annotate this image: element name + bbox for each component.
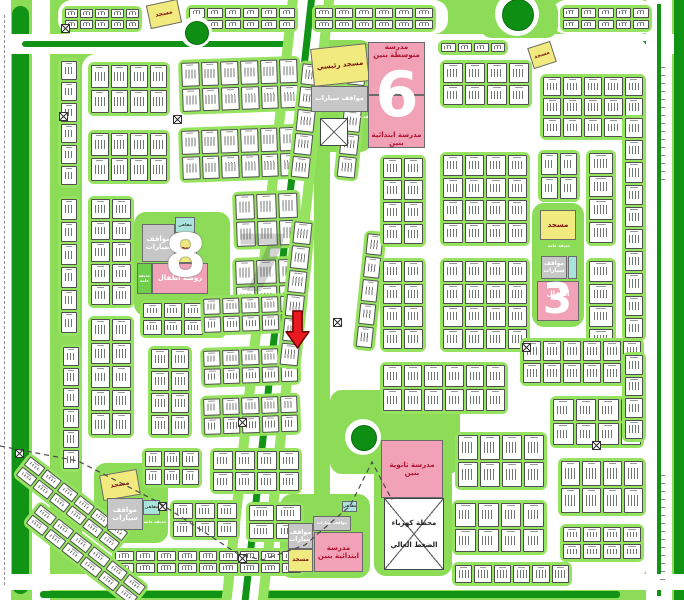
mosque-bottom-left-label: مسجد — [110, 480, 130, 491]
plot — [458, 462, 478, 487]
plot — [633, 8, 649, 18]
plot — [91, 285, 110, 305]
plot — [91, 413, 110, 435]
plot — [207, 8, 223, 18]
plot — [560, 153, 577, 175]
plot — [633, 20, 649, 30]
plot — [561, 461, 580, 486]
plot — [260, 128, 278, 152]
plot — [625, 140, 643, 160]
plot — [261, 314, 279, 331]
plot — [625, 420, 643, 440]
plot — [404, 224, 423, 244]
plot — [581, 20, 597, 30]
plot — [157, 563, 176, 573]
plot — [576, 399, 597, 421]
plot — [178, 551, 197, 561]
plot — [261, 20, 277, 30]
plot — [443, 284, 463, 305]
plot — [486, 223, 506, 244]
plot — [222, 398, 240, 416]
plot — [465, 85, 485, 105]
plot — [279, 472, 299, 491]
plot — [589, 199, 613, 220]
plot — [112, 264, 131, 284]
housing-block-11 — [88, 196, 134, 308]
housing-block-22 — [170, 500, 240, 540]
plot — [91, 65, 109, 88]
plot — [383, 261, 402, 282]
garden-bottom-left-label: حديقة عامة — [140, 516, 170, 528]
plot — [61, 82, 77, 101]
district-number-6: 6 — [368, 64, 425, 126]
plot — [458, 43, 473, 52]
utility-x-symbol-4 — [522, 343, 531, 352]
plot — [261, 153, 279, 177]
housing-block-38 — [538, 150, 580, 202]
plot — [63, 368, 79, 387]
plot — [541, 177, 558, 199]
roundabout-bottom-center — [351, 425, 377, 451]
plot — [61, 145, 77, 164]
plot — [501, 529, 522, 553]
plot — [584, 98, 602, 117]
plot — [61, 312, 77, 333]
plot — [112, 199, 131, 219]
plot — [221, 86, 239, 110]
plot — [509, 85, 529, 105]
plot — [201, 130, 219, 154]
plot — [201, 62, 219, 86]
plot — [598, 399, 619, 421]
parking-bottom-left-label: مواقف سيارات — [108, 506, 142, 522]
plot — [143, 303, 162, 318]
plot — [486, 389, 505, 411]
housing-block-49 — [452, 562, 572, 586]
plot — [315, 8, 333, 18]
plot — [242, 315, 260, 332]
plot — [242, 367, 260, 384]
plot — [443, 85, 463, 105]
plot — [466, 389, 485, 411]
plot — [203, 350, 221, 367]
plot — [563, 20, 579, 30]
plot — [383, 365, 402, 387]
plot — [150, 158, 168, 181]
garden-bottom-left-label-label: حديقة عامة — [144, 520, 167, 525]
plot — [184, 320, 203, 335]
plot — [293, 133, 313, 156]
plot — [625, 318, 643, 338]
mosque-roundabout-label: مسجد — [533, 50, 550, 61]
plot — [443, 63, 463, 83]
plot — [404, 329, 423, 350]
plot — [589, 306, 613, 327]
plot — [486, 284, 506, 305]
map-stage[interactable]: مسجدمسجد رئيسيمواقف سياراتحديقة عامةمدرس… — [0, 0, 684, 600]
garden-x-block — [320, 118, 348, 146]
plot — [213, 451, 233, 470]
plot — [130, 158, 148, 181]
plot — [91, 133, 109, 156]
plot — [404, 202, 423, 222]
plot — [465, 306, 485, 327]
plot — [625, 118, 643, 138]
plot — [63, 388, 79, 407]
plot — [61, 199, 77, 220]
plot — [112, 319, 131, 341]
plot — [276, 505, 301, 521]
housing-block-39 — [380, 258, 426, 352]
plot — [261, 366, 279, 383]
plot — [279, 8, 295, 18]
main-parking-label: مواقف سيارات — [315, 95, 364, 102]
plot — [404, 389, 423, 411]
plot — [598, 20, 614, 30]
plot — [225, 20, 241, 30]
plot — [61, 222, 77, 243]
plot — [383, 202, 402, 222]
plot — [279, 20, 295, 30]
plot — [383, 180, 402, 200]
plot — [445, 365, 464, 387]
housing-block-35 — [440, 152, 530, 246]
plot — [202, 87, 220, 111]
plot — [173, 521, 193, 537]
plot — [465, 63, 485, 83]
main-mosque: مسجد رئيسي — [310, 43, 370, 87]
plot — [441, 43, 456, 52]
housing-block-24 — [112, 548, 304, 576]
plot — [541, 153, 558, 175]
housing-block-4 — [58, 58, 80, 188]
plot — [91, 199, 110, 219]
plot — [63, 430, 79, 449]
plot — [243, 8, 259, 18]
plot — [563, 98, 581, 117]
plot — [219, 551, 238, 561]
plot — [563, 363, 581, 383]
plot — [508, 155, 528, 176]
right-station-ticks-bottom — [660, 470, 665, 580]
plot — [624, 461, 643, 486]
plot — [112, 221, 131, 241]
plot — [604, 77, 622, 96]
plot — [225, 8, 241, 18]
plot — [130, 90, 148, 113]
plot — [281, 415, 299, 433]
plot — [111, 133, 129, 156]
plot — [625, 273, 643, 293]
district-number-8: 8 — [150, 226, 220, 286]
plot — [112, 343, 131, 365]
plot — [625, 355, 643, 375]
plot — [543, 98, 561, 117]
utility-x-symbol-2 — [173, 115, 182, 124]
plot — [126, 20, 139, 29]
housing-block-42 — [380, 362, 508, 414]
plot — [256, 193, 276, 219]
garden-area3-label: حديقة عامة — [541, 240, 577, 252]
plot — [157, 551, 176, 561]
plot — [235, 451, 255, 470]
plot — [240, 60, 258, 84]
plot — [623, 527, 641, 542]
plot — [61, 61, 77, 80]
housing-block-34 — [380, 155, 426, 247]
plot — [486, 200, 506, 221]
parking-bottom-center-1: مواقف سيارات — [313, 516, 351, 531]
plot — [404, 158, 423, 178]
plot — [173, 503, 193, 519]
plot — [112, 366, 131, 388]
plot — [261, 85, 279, 109]
housing-block-5 — [58, 196, 80, 336]
plot — [561, 488, 580, 513]
plot — [112, 390, 131, 412]
parking-bottom-center-1-label: مواقف سيارات — [317, 521, 347, 526]
housing-block-19 — [200, 393, 301, 438]
plot — [583, 527, 601, 542]
plot — [583, 544, 601, 559]
plot — [508, 284, 528, 305]
plot — [171, 349, 189, 369]
plot — [625, 398, 643, 418]
plot — [164, 451, 181, 467]
plot — [404, 306, 423, 327]
plot — [563, 8, 579, 18]
plot — [623, 544, 641, 559]
plot — [363, 256, 381, 279]
plot — [415, 8, 433, 18]
plot — [136, 563, 155, 573]
plot — [375, 8, 393, 18]
plot — [80, 9, 93, 18]
plot — [404, 365, 423, 387]
plot — [443, 200, 463, 221]
plot — [375, 20, 393, 30]
plot — [383, 224, 402, 244]
plot — [111, 65, 129, 88]
plot — [625, 162, 643, 182]
plot — [199, 551, 218, 561]
plot — [151, 349, 169, 369]
plot — [480, 462, 500, 487]
plot — [625, 207, 643, 227]
right-station-ticks-top — [660, 60, 665, 180]
plot — [424, 365, 443, 387]
elementary-school-bottom: مدرسة ابتدائية بنين — [314, 532, 363, 572]
roundabout-top-left — [185, 21, 209, 45]
plot — [543, 341, 561, 361]
plot — [563, 527, 581, 542]
plot — [217, 503, 237, 519]
plot — [204, 417, 222, 435]
plot — [61, 166, 77, 185]
plot — [625, 229, 643, 249]
plot — [112, 242, 131, 262]
plot — [443, 178, 463, 199]
plot — [509, 63, 529, 83]
plot — [130, 65, 148, 88]
plot — [616, 8, 632, 18]
plot — [63, 450, 79, 469]
plot — [443, 329, 463, 350]
plot — [243, 20, 259, 30]
plot — [404, 284, 423, 305]
housing-block-50 — [622, 352, 646, 442]
plot — [513, 565, 530, 583]
plot — [465, 200, 485, 221]
plot — [395, 20, 413, 30]
plot — [603, 363, 621, 383]
plot — [61, 244, 77, 265]
plot — [91, 343, 110, 365]
plot — [563, 118, 581, 137]
plot — [404, 261, 423, 282]
plot — [502, 462, 522, 487]
plot — [465, 178, 485, 199]
plot — [603, 341, 621, 361]
housing-block-20 — [142, 448, 202, 488]
housing-block-16 — [148, 346, 192, 438]
plot — [486, 178, 506, 199]
plot — [501, 503, 522, 527]
plot — [171, 371, 189, 391]
housing-block-46 — [558, 458, 646, 516]
plot — [443, 155, 463, 176]
plot — [145, 469, 162, 485]
plot — [455, 529, 476, 553]
plot — [625, 377, 643, 397]
plot — [553, 423, 574, 445]
plot — [111, 20, 124, 29]
plot — [95, 9, 108, 18]
plot — [543, 363, 561, 383]
plot — [241, 86, 259, 110]
plot — [560, 177, 577, 199]
plot — [181, 62, 199, 86]
plot — [257, 472, 277, 491]
mosque-bottom-center-label: مسجد — [292, 557, 309, 564]
housing-block-31 — [438, 40, 508, 55]
plot — [603, 527, 621, 542]
plot — [151, 371, 169, 391]
housing-block-45 — [455, 432, 547, 490]
plot — [213, 472, 233, 491]
plot — [203, 398, 221, 416]
plot — [182, 469, 199, 485]
utility-x-symbol-0 — [61, 24, 70, 33]
plot — [625, 185, 643, 205]
parking-area3-label: مواقف سيارات — [542, 261, 566, 274]
plot — [241, 397, 259, 415]
road-left-green-belt — [12, 6, 29, 594]
plot — [240, 128, 258, 152]
road-right-green-belt — [674, 0, 684, 600]
plot — [91, 221, 110, 241]
plot — [261, 348, 279, 365]
power-station: محطة كهرباءالضغط العالي — [384, 498, 444, 570]
secondary-school: مدرسة ثانوية بنين — [381, 440, 443, 498]
plot — [220, 129, 238, 153]
housing-block-6 — [60, 344, 82, 472]
plot — [143, 320, 162, 335]
plot — [502, 435, 522, 460]
plot — [494, 565, 511, 583]
plot — [589, 222, 613, 243]
plot — [465, 329, 485, 350]
plot — [583, 363, 601, 383]
plot — [358, 303, 376, 326]
plot — [235, 472, 255, 491]
plot — [61, 124, 77, 143]
main-mosque-label: مسجد رئيسي — [316, 59, 363, 72]
parking-bottom-center-2-label: مواقف سيارات — [289, 529, 312, 543]
plot — [223, 316, 241, 333]
plot — [111, 9, 124, 18]
plot — [171, 393, 189, 413]
plot — [221, 154, 239, 178]
plot — [603, 544, 621, 559]
plot — [130, 133, 148, 156]
plot — [241, 154, 259, 178]
main-parking: مواقف سيارات — [311, 86, 368, 112]
plot — [63, 409, 79, 428]
plot — [356, 326, 374, 349]
plot — [61, 290, 77, 311]
plot — [260, 60, 278, 84]
plot — [61, 267, 77, 288]
plot — [171, 415, 189, 435]
utility-x-symbol-9 — [238, 554, 247, 563]
plot — [404, 180, 423, 200]
plot — [604, 98, 622, 117]
plot — [582, 461, 601, 486]
utility-x-symbol-1 — [59, 112, 68, 121]
plot — [625, 77, 643, 96]
plot — [204, 316, 222, 333]
plot — [95, 20, 108, 29]
plot — [616, 20, 632, 30]
plot — [383, 389, 402, 411]
utility-x-symbol-5 — [592, 441, 601, 450]
plot — [486, 261, 506, 282]
plot — [164, 320, 183, 335]
plot — [415, 20, 433, 30]
housing-block-7 — [88, 62, 170, 116]
plot — [455, 503, 476, 527]
plot — [91, 366, 110, 388]
secondary-school-label: مدرسة ثانوية بنين — [382, 461, 442, 477]
district-number-7: 7 — [222, 226, 302, 304]
mosque-bottom-center: مسجد — [288, 549, 313, 572]
plot — [563, 341, 581, 361]
plot — [478, 529, 499, 553]
plot — [474, 43, 489, 52]
parking-bottom-left: مواقف سيارات — [107, 498, 143, 530]
plot — [355, 20, 373, 30]
plot — [455, 565, 472, 583]
garden-area3-label-label: حديقة عامة — [548, 244, 571, 249]
plot — [598, 8, 614, 18]
plot — [508, 306, 528, 327]
plot — [112, 285, 131, 305]
housing-block-40 — [440, 258, 530, 352]
plot — [486, 365, 505, 387]
plot — [443, 306, 463, 327]
plot — [589, 284, 613, 305]
